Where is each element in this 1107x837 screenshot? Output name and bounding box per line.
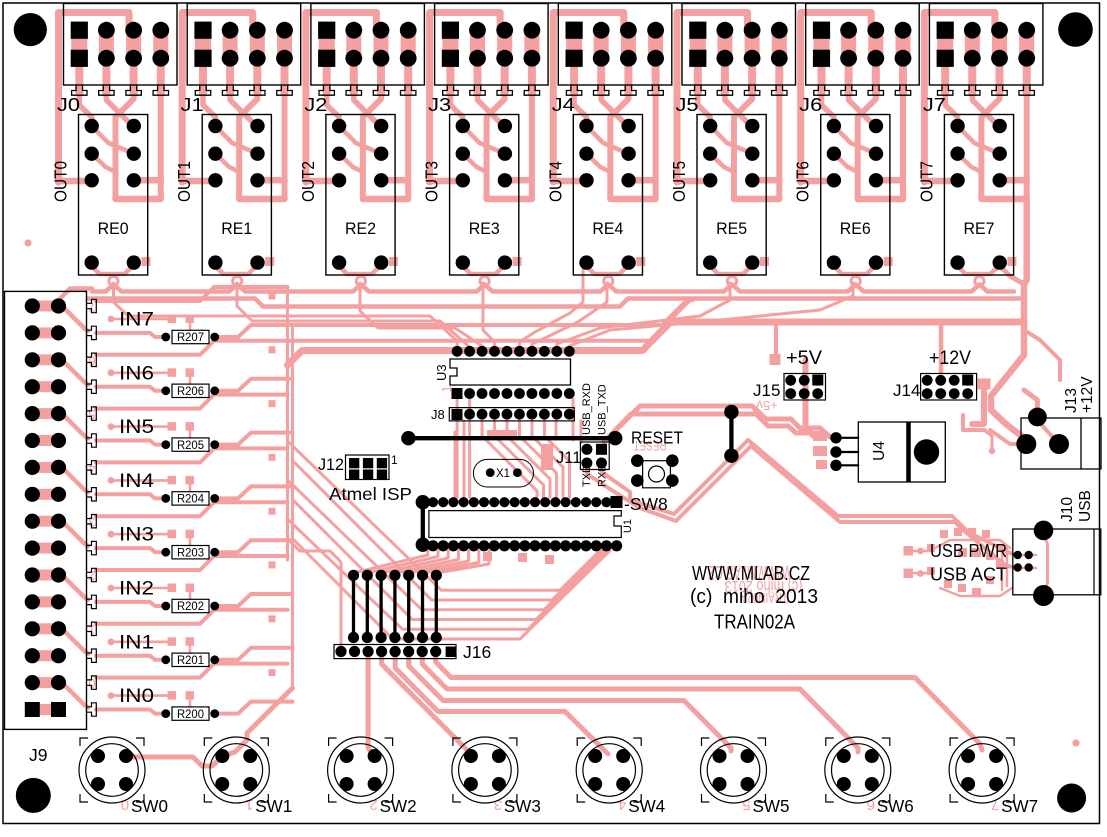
svg-text:+12V: +12V bbox=[929, 347, 971, 369]
svg-text:RE4: RE4 bbox=[592, 220, 623, 238]
svg-text:USB: USB bbox=[1077, 490, 1094, 522]
svg-text:TXD: TXD bbox=[581, 465, 593, 487]
svg-text:Atmel ISP: Atmel ISP bbox=[329, 484, 412, 504]
svg-text:OUT1: OUT1 bbox=[174, 161, 194, 202]
svg-text:R205: R205 bbox=[177, 440, 204, 452]
svg-text:IN6: IN6 bbox=[119, 362, 154, 384]
svg-text:OUT0: OUT0 bbox=[51, 161, 71, 202]
svg-text:J14: J14 bbox=[893, 381, 920, 400]
svg-text:J12: J12 bbox=[318, 455, 344, 474]
svg-text:RE1: RE1 bbox=[221, 220, 252, 238]
svg-text:SW7: SW7 bbox=[1001, 796, 1038, 816]
svg-text:J2: J2 bbox=[304, 95, 327, 115]
svg-text:U1: U1 bbox=[622, 519, 634, 533]
svg-text:IN1: IN1 bbox=[119, 631, 154, 653]
svg-text:USB PWR: USB PWR bbox=[930, 541, 1007, 561]
svg-text:RE3: RE3 bbox=[469, 220, 500, 238]
svg-text:J9: J9 bbox=[29, 745, 47, 765]
svg-text:SW2: SW2 bbox=[380, 796, 417, 816]
svg-text:OUT3: OUT3 bbox=[422, 161, 442, 202]
svg-text:IN7: IN7 bbox=[119, 309, 154, 331]
svg-text:R203: R203 bbox=[177, 547, 204, 559]
svg-text:J6: J6 bbox=[799, 95, 822, 115]
svg-text:1: 1 bbox=[439, 385, 454, 392]
svg-text:SW4: SW4 bbox=[628, 796, 665, 816]
svg-text:SW3: SW3 bbox=[504, 796, 541, 816]
svg-text:J10: J10 bbox=[1059, 497, 1076, 522]
svg-text:OUT2: OUT2 bbox=[298, 161, 318, 202]
svg-text:J8: J8 bbox=[431, 407, 445, 422]
svg-text:RESET: RESET bbox=[631, 428, 683, 448]
svg-text:J5: J5 bbox=[676, 95, 699, 115]
svg-text:RE2: RE2 bbox=[345, 220, 376, 238]
svg-text:RE5: RE5 bbox=[716, 220, 747, 238]
svg-text:OUT4: OUT4 bbox=[545, 161, 565, 202]
svg-text:SW0: SW0 bbox=[131, 796, 168, 816]
svg-text:+5V: +5V bbox=[786, 347, 822, 369]
svg-text:J1: J1 bbox=[181, 95, 204, 115]
svg-text:OUT5: OUT5 bbox=[669, 161, 689, 202]
svg-text:IN4: IN4 bbox=[119, 470, 154, 492]
svg-text:IN0: IN0 bbox=[119, 685, 154, 707]
svg-text:R200: R200 bbox=[177, 709, 204, 721]
svg-text:OUT7: OUT7 bbox=[916, 161, 936, 202]
svg-text:OUT6: OUT6 bbox=[793, 161, 813, 202]
svg-text:1: 1 bbox=[391, 453, 398, 467]
svg-text:U4: U4 bbox=[871, 441, 888, 461]
svg-text:IN5: IN5 bbox=[119, 416, 154, 438]
svg-text:J11: J11 bbox=[556, 449, 581, 467]
svg-text:R207: R207 bbox=[177, 332, 204, 344]
svg-text:J4: J4 bbox=[552, 95, 575, 115]
svg-text:J0: J0 bbox=[57, 95, 80, 115]
svg-text:(c) miho 2013: (c) miho 2013 bbox=[690, 585, 818, 608]
svg-text:+12V: +12V bbox=[1079, 376, 1096, 413]
svg-text:WWW.MLAB.CZ: WWW.MLAB.CZ bbox=[692, 562, 810, 585]
svg-text:IN3: IN3 bbox=[119, 524, 154, 546]
svg-text:SW6: SW6 bbox=[877, 796, 914, 816]
svg-text:J3: J3 bbox=[428, 95, 451, 115]
svg-text:J15: J15 bbox=[753, 381, 780, 400]
svg-text:USB_TXD: USB_TXD bbox=[597, 384, 609, 435]
svg-text:TRAIN02A: TRAIN02A bbox=[714, 611, 795, 634]
svg-text:J16: J16 bbox=[463, 642, 491, 662]
svg-text:R204: R204 bbox=[177, 494, 205, 506]
svg-text:SW5: SW5 bbox=[753, 796, 790, 816]
svg-text:IN2: IN2 bbox=[119, 578, 154, 600]
svg-text:SW1: SW1 bbox=[255, 796, 292, 816]
svg-text:RE6: RE6 bbox=[840, 220, 871, 238]
svg-text:USB_RXD: USB_RXD bbox=[581, 383, 593, 435]
svg-text:X1: X1 bbox=[496, 468, 510, 480]
svg-text:RE0: RE0 bbox=[98, 220, 129, 238]
svg-text:U3: U3 bbox=[434, 364, 449, 381]
svg-text:USB ACT: USB ACT bbox=[930, 565, 1007, 585]
svg-text:-SW8: -SW8 bbox=[624, 494, 668, 514]
svg-text:R201: R201 bbox=[177, 655, 204, 667]
svg-text:RXD: RXD bbox=[597, 464, 609, 487]
svg-text:J7: J7 bbox=[923, 95, 946, 115]
svg-text:J13: J13 bbox=[1063, 388, 1080, 413]
svg-text:+5v: +5v bbox=[756, 398, 778, 413]
svg-text:R206: R206 bbox=[177, 386, 204, 398]
svg-text:RE7: RE7 bbox=[964, 220, 995, 238]
svg-text:R202: R202 bbox=[177, 601, 204, 613]
